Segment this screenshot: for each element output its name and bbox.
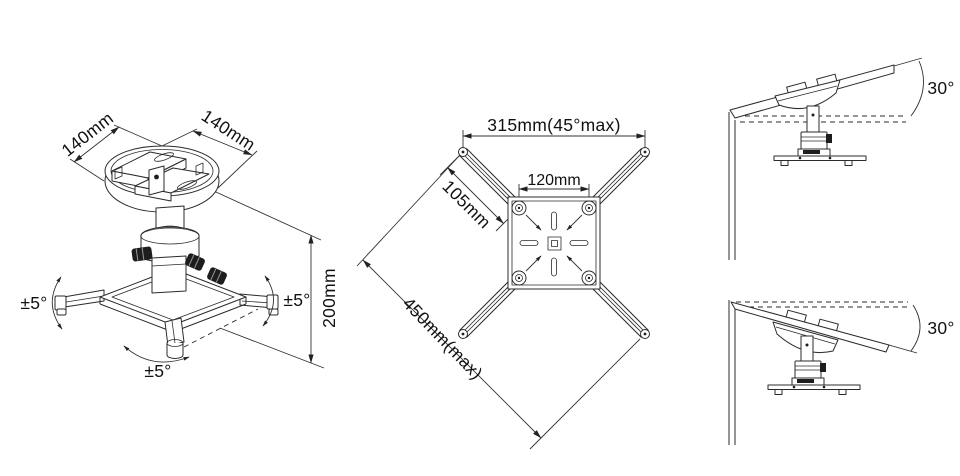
- ceiling-disc: [105, 146, 219, 212]
- iso-dim-left-label: 140mm: [58, 108, 117, 161]
- side-view-tilt-down: 30°: [729, 300, 955, 445]
- swivel-label: ±5°: [144, 361, 171, 381]
- angle-arc-down: [911, 305, 920, 351]
- angle-extension-up: [894, 58, 922, 66]
- mount-body-up: [774, 80, 866, 166]
- isometric-view: 140mm 140mm 200mm ±5° ±5° ±5°: [20, 105, 339, 381]
- angle-arc-up: [911, 61, 924, 116]
- wall-lines-down: [729, 300, 735, 445]
- wall-lines: [729, 112, 735, 260]
- central-plate: [508, 197, 600, 289]
- tilt-left-label: ±5°: [20, 293, 47, 313]
- side-view-tilt-up: 30°: [729, 58, 955, 260]
- top-arm-label: 105mm: [438, 176, 494, 232]
- top-plate-label: 120mm: [527, 172, 580, 189]
- iso-dim-right-label: 140mm: [198, 105, 259, 154]
- top-view: 315mm(45°max) 120mm 105mm 450mm(max): [357, 115, 650, 449]
- iso-height-label: 200mm: [319, 268, 339, 328]
- top-diagonal-label: 450mm(max): [399, 293, 487, 383]
- diagram-canvas: 140mm 140mm 200mm ±5° ±5° ±5°: [0, 0, 960, 476]
- tilt-right-label: ±5°: [283, 290, 310, 310]
- mount-dimension-drawing: 140mm 140mm 200mm ±5° ±5° ±5°: [0, 0, 960, 476]
- tilt-down-angle-label: 30°: [927, 318, 954, 338]
- tilt-up-angle-label: 30°: [927, 78, 954, 98]
- top-span-label: 315mm(45°max): [487, 115, 620, 135]
- mount-column: [152, 256, 186, 293]
